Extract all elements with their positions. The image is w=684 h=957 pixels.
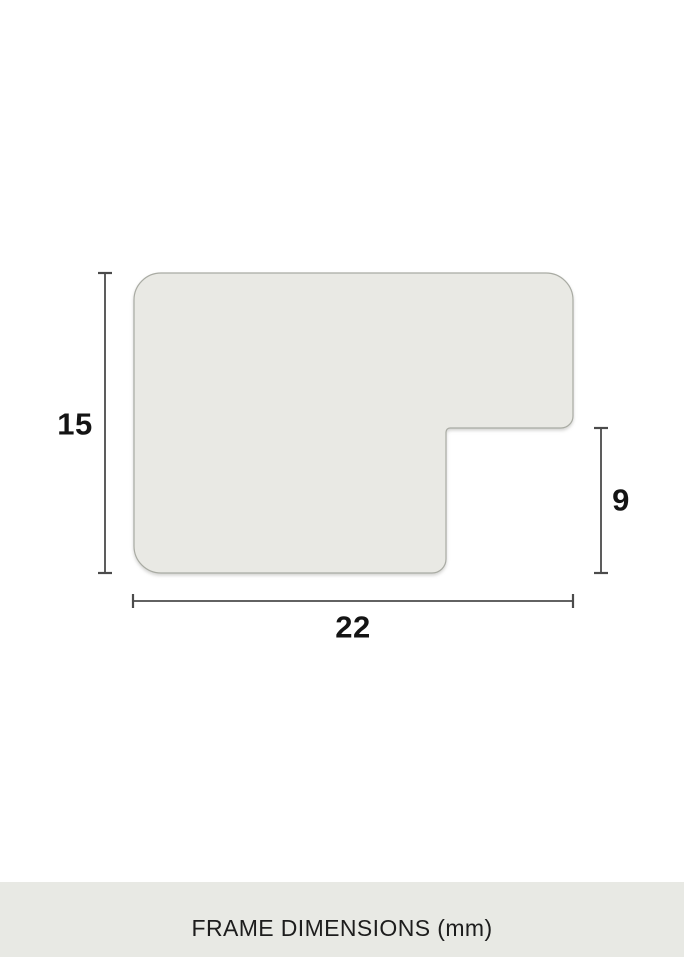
height-dimension-label: 15 [57, 409, 92, 440]
caption-bar: FRAME DIMENSIONS (mm) [0, 882, 684, 957]
caption-text: FRAME DIMENSIONS (mm) [192, 914, 493, 944]
frame-profile-shape [134, 273, 573, 573]
rabbet-dimension-label: 9 [612, 485, 630, 516]
profile-diagram-svg [0, 0, 684, 700]
width-dimension-label: 22 [335, 612, 370, 643]
rabbet-dimension-line [594, 428, 608, 573]
width-dimension-line [133, 594, 573, 608]
height-dimension-line [98, 273, 112, 573]
frame-dimensions-diagram: 15 9 22 FRAME DIMENSIONS (mm) [0, 0, 684, 957]
